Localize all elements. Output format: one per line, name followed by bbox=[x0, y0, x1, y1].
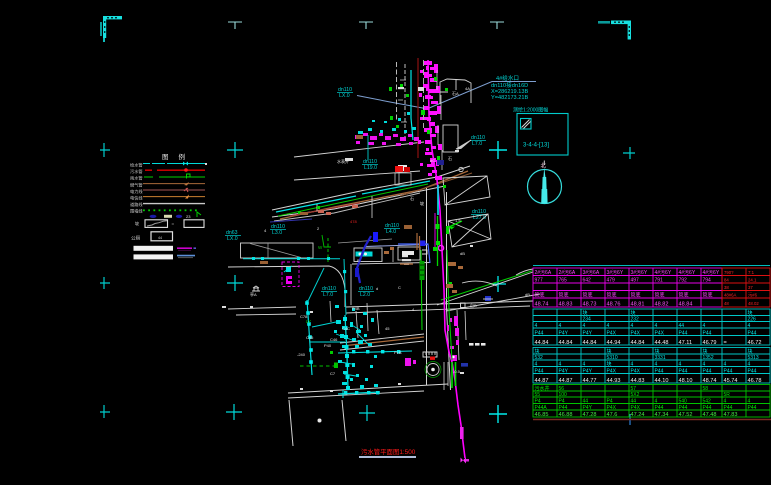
svg-text:4: 4 bbox=[679, 362, 682, 368]
svg-text:P44: P44 bbox=[703, 369, 712, 375]
svg-text:44: 44 bbox=[158, 236, 162, 240]
svg-text:232: 232 bbox=[631, 317, 640, 323]
svg-text:5R: 5R bbox=[724, 392, 731, 398]
svg-text:P4X: P4X bbox=[607, 405, 617, 411]
svg-text:44.77: 44.77 bbox=[583, 378, 597, 384]
svg-text:P44: P44 bbox=[748, 331, 757, 337]
svg-text:478: 478 bbox=[350, 219, 357, 224]
svg-text:5310: 5310 bbox=[607, 355, 618, 361]
svg-text:44.94: 44.94 bbox=[607, 340, 621, 346]
svg-text:792: 792 bbox=[679, 278, 688, 284]
svg-text:C7: C7 bbox=[330, 371, 336, 376]
svg-text:4: 4 bbox=[535, 323, 538, 329]
svg-text:532: 532 bbox=[535, 355, 544, 361]
svg-text:38: 38 bbox=[724, 285, 729, 290]
svg-text:4: 4 bbox=[748, 323, 751, 329]
svg-text:977: 977 bbox=[535, 278, 544, 284]
svg-text:48.84: 48.84 bbox=[679, 302, 693, 308]
svg-text:44.83: 44.83 bbox=[631, 378, 645, 384]
svg-text:P4X: P4X bbox=[607, 331, 617, 337]
svg-text:P44: P44 bbox=[679, 369, 688, 375]
svg-text:L7.0: L7.0 bbox=[323, 292, 333, 298]
svg-text:37: 37 bbox=[748, 285, 753, 290]
svg-text:P4X: P4X bbox=[607, 369, 617, 375]
svg-text:=: = bbox=[724, 340, 727, 346]
svg-text:4#污6Y: 4#污6Y bbox=[655, 269, 672, 276]
svg-text:4: 4 bbox=[607, 323, 610, 329]
svg-text:污#6: 污#6 bbox=[748, 292, 758, 299]
svg-text:4: 4 bbox=[631, 323, 634, 329]
svg-text:d: d bbox=[376, 286, 378, 291]
svg-text:块: 块 bbox=[583, 310, 588, 317]
svg-text:P44A: P44A bbox=[535, 405, 548, 411]
svg-text:LX.0: LX.0 bbox=[339, 93, 350, 99]
svg-text:管底: 管底 bbox=[583, 292, 593, 299]
svg-text:24.1: 24.1 bbox=[748, 278, 757, 283]
svg-text:791: 791 bbox=[655, 278, 664, 284]
svg-text:47.24: 47.24 bbox=[631, 412, 645, 418]
svg-text:48.10: 48.10 bbox=[679, 378, 693, 384]
svg-text:4: 4 bbox=[583, 362, 586, 368]
svg-text:块: 块 bbox=[748, 310, 753, 317]
svg-text:=: = bbox=[172, 222, 175, 227]
svg-text:dC: dC bbox=[430, 158, 435, 163]
svg-text:3#污6Y: 3#污6Y bbox=[631, 269, 648, 276]
svg-text:47.6: 47.6 bbox=[607, 412, 618, 418]
svg-text:44.87: 44.87 bbox=[535, 378, 549, 384]
svg-text:P4X: P4X bbox=[655, 331, 665, 337]
svg-text:L19.0: L19.0 bbox=[364, 165, 377, 171]
svg-text:-0.5: -0.5 bbox=[453, 369, 461, 374]
svg-text:C46: C46 bbox=[330, 337, 338, 342]
svg-text:亭A: 亭A bbox=[250, 291, 257, 297]
svg-text:4: 4 bbox=[748, 362, 751, 368]
svg-text:47.83: 47.83 bbox=[724, 412, 738, 418]
svg-text:P4Y: P4Y bbox=[583, 331, 593, 337]
svg-text:48.76: 48.76 bbox=[607, 302, 621, 308]
svg-text:P44: P44 bbox=[679, 405, 688, 411]
svg-text:dB: dB bbox=[460, 251, 465, 256]
svg-text:Y=482173.21B: Y=482173.21B bbox=[491, 95, 528, 101]
svg-text:L2.0: L2.0 bbox=[360, 292, 370, 298]
svg-text:47.52: 47.52 bbox=[679, 412, 693, 418]
svg-text:100: 100 bbox=[559, 392, 568, 398]
svg-text:44.93: 44.93 bbox=[607, 378, 621, 384]
svg-text:497: 497 bbox=[631, 278, 640, 284]
svg-text:P44: P44 bbox=[655, 369, 664, 375]
svg-text:48.73: 48.73 bbox=[583, 302, 597, 308]
svg-text:48.02: 48.02 bbox=[748, 301, 759, 306]
svg-text:542: 542 bbox=[703, 399, 712, 405]
svg-text:B: B bbox=[357, 258, 360, 263]
svg-text:块: 块 bbox=[703, 348, 708, 355]
svg-text:4: 4 bbox=[559, 362, 562, 368]
svg-text:4: 4 bbox=[724, 399, 727, 405]
svg-text:坡: 坡 bbox=[135, 220, 139, 226]
svg-text:围墙线: 围墙线 bbox=[130, 208, 143, 215]
svg-text:P44: P44 bbox=[748, 405, 757, 411]
svg-text:44.84: 44.84 bbox=[631, 340, 645, 346]
svg-text:管底: 管底 bbox=[655, 292, 665, 299]
svg-text:48: 48 bbox=[724, 301, 729, 306]
svg-text:58: 58 bbox=[703, 386, 709, 392]
svg-text:图例: 图例 bbox=[162, 152, 195, 161]
svg-text:540: 540 bbox=[679, 399, 688, 405]
svg-text:48.82: 48.82 bbox=[655, 302, 669, 308]
svg-text:479: 479 bbox=[607, 278, 616, 284]
svg-text:LX.0: LX.0 bbox=[227, 236, 238, 242]
svg-text:管底: 管底 bbox=[535, 292, 545, 299]
svg-text:管底: 管底 bbox=[607, 292, 617, 299]
svg-text:3-4-4-[13]: 3-4-4-[13] bbox=[523, 143, 549, 149]
svg-text:3331: 3331 bbox=[655, 355, 666, 361]
svg-text:46.78: 46.78 bbox=[748, 378, 762, 384]
svg-text:P44: P44 bbox=[679, 331, 688, 337]
svg-text:5313: 5313 bbox=[748, 355, 759, 361]
svg-text:L7.0: L7.0 bbox=[472, 141, 482, 147]
svg-text:测绘1:2000图幅: 测绘1:2000图幅 bbox=[513, 107, 548, 114]
svg-text:47.28: 47.28 bbox=[583, 412, 597, 418]
svg-text:1.5: 1.5 bbox=[455, 218, 461, 223]
svg-text:48.81: 48.81 bbox=[631, 302, 645, 308]
svg-text:45.74: 45.74 bbox=[724, 378, 738, 384]
svg-text:坡: 坡 bbox=[420, 200, 424, 206]
svg-text:P4Y: P4Y bbox=[559, 369, 569, 375]
svg-text:污水管平面图1:500: 污水管平面图1:500 bbox=[361, 447, 416, 456]
svg-text:雨水管: 雨水管 bbox=[130, 175, 143, 182]
svg-text:P4X: P4X bbox=[631, 369, 641, 375]
svg-text:2#污6A: 2#污6A bbox=[559, 269, 576, 276]
svg-text:3#污6A: 3#污6A bbox=[583, 269, 600, 276]
svg-text:P44: P44 bbox=[724, 369, 733, 375]
svg-text:dn110接dn16D: dn110接dn16D bbox=[491, 81, 528, 89]
svg-text:46.72: 46.72 bbox=[748, 340, 762, 346]
svg-text:44.84: 44.84 bbox=[583, 340, 597, 346]
svg-text:7:1: 7:1 bbox=[748, 270, 755, 275]
svg-text:44: 44 bbox=[583, 399, 589, 405]
svg-text:块: 块 bbox=[607, 361, 612, 368]
svg-text:790?: 790? bbox=[724, 270, 734, 275]
svg-text:石: 石 bbox=[410, 196, 414, 201]
svg-text:55: 55 bbox=[535, 392, 541, 398]
svg-text:管底: 管底 bbox=[703, 292, 713, 299]
svg-text:2#污6A: 2#污6A bbox=[535, 269, 552, 276]
svg-text:管底: 管底 bbox=[559, 292, 569, 299]
svg-text:P44: P44 bbox=[703, 405, 712, 411]
svg-text:P44: P44 bbox=[748, 369, 757, 375]
svg-text:P4Y: P4Y bbox=[559, 331, 569, 337]
svg-text:P4B: P4B bbox=[352, 306, 360, 311]
svg-text:44.84: 44.84 bbox=[535, 340, 549, 346]
svg-text:234: 234 bbox=[583, 317, 592, 323]
svg-text:794: 794 bbox=[703, 278, 712, 284]
svg-text:白B: 白B bbox=[470, 302, 477, 308]
svg-text:48.74: 48.74 bbox=[535, 302, 549, 308]
svg-text:P44: P44 bbox=[535, 369, 544, 375]
svg-text:块: 块 bbox=[655, 348, 660, 355]
svg-text:管底: 管底 bbox=[679, 292, 689, 299]
svg-text:45: 45 bbox=[385, 326, 390, 331]
svg-text:L3.0: L3.0 bbox=[272, 230, 282, 236]
svg-text:765: 765 bbox=[559, 278, 568, 284]
svg-text:C45: C45 bbox=[306, 335, 314, 340]
svg-text:44.87: 44.87 bbox=[559, 378, 573, 384]
svg-text:48.74: 48.74 bbox=[703, 378, 717, 384]
svg-text:P1B: P1B bbox=[394, 350, 402, 355]
svg-text:P44: P44 bbox=[703, 331, 712, 337]
svg-text:4: 4 bbox=[559, 323, 562, 329]
svg-text:47.48: 47.48 bbox=[703, 412, 717, 418]
svg-text:642: 642 bbox=[583, 278, 592, 284]
svg-text:4: 4 bbox=[583, 323, 586, 329]
svg-text:47.11: 47.11 bbox=[679, 340, 693, 346]
svg-text:4: 4 bbox=[703, 323, 706, 329]
svg-text:P44: P44 bbox=[724, 405, 733, 411]
svg-text:dB: dB bbox=[525, 292, 530, 297]
svg-text:石A: 石A bbox=[452, 91, 459, 96]
svg-text:4: 4 bbox=[655, 399, 658, 405]
svg-text:P44: P44 bbox=[559, 405, 568, 411]
svg-text:5X2: 5X2 bbox=[631, 392, 640, 398]
svg-text:4: 4 bbox=[631, 362, 634, 368]
svg-text:块: 块 bbox=[748, 348, 753, 355]
svg-text:P4: P4 bbox=[535, 399, 541, 405]
svg-text:4: 4 bbox=[724, 362, 727, 368]
svg-text:P4: P4 bbox=[607, 399, 613, 405]
svg-text:1352: 1352 bbox=[703, 355, 714, 361]
svg-text:44.10: 44.10 bbox=[655, 378, 669, 384]
svg-text:P4X: P4X bbox=[631, 331, 641, 337]
svg-text:226: 226 bbox=[748, 317, 757, 323]
svg-text:C4C: C4C bbox=[342, 326, 350, 331]
svg-text:P4: P4 bbox=[559, 399, 565, 405]
svg-text:P44: P44 bbox=[535, 331, 544, 337]
svg-text:P40: P40 bbox=[324, 343, 332, 348]
svg-text:C: C bbox=[398, 285, 401, 290]
svg-text:P44: P44 bbox=[655, 405, 664, 411]
svg-text:P4X: P4X bbox=[631, 405, 641, 411]
svg-text:46.85: 46.85 bbox=[535, 412, 549, 418]
svg-text:管底: 管底 bbox=[631, 292, 641, 299]
svg-text:4A: 4A bbox=[465, 86, 470, 91]
svg-text:电信线: 电信线 bbox=[130, 195, 143, 202]
svg-text:石: 石 bbox=[448, 156, 452, 161]
svg-text:48#6A: 48#6A bbox=[724, 293, 737, 298]
svg-text:23: 23 bbox=[186, 214, 191, 219]
svg-text:3#污6Y: 3#污6Y bbox=[607, 269, 624, 276]
svg-text:-240: -240 bbox=[297, 352, 306, 357]
svg-text:L4.0: L4.0 bbox=[386, 229, 396, 235]
svg-text:块: 块 bbox=[535, 348, 540, 355]
svg-text:4: 4 bbox=[703, 362, 706, 368]
svg-text:电力线: 电力线 bbox=[130, 188, 143, 195]
svg-text:48.83: 48.83 bbox=[559, 302, 573, 308]
svg-text:46.88: 46.88 bbox=[559, 412, 573, 418]
svg-text:给水管: 给水管 bbox=[130, 162, 143, 169]
svg-text:44.48: 44.48 bbox=[655, 340, 669, 346]
svg-text:P4Y: P4Y bbox=[583, 405, 593, 411]
svg-text:4#污6Y: 4#污6Y bbox=[679, 269, 696, 276]
svg-text:4: 4 bbox=[535, 362, 538, 368]
svg-text:LY: LY bbox=[306, 319, 311, 324]
svg-text:C78: C78 bbox=[300, 314, 308, 319]
svg-text:污水井: 污水井 bbox=[535, 385, 550, 392]
svg-text:84: 84 bbox=[724, 278, 729, 283]
svg-text:44: 44 bbox=[679, 323, 685, 329]
svg-text:燃气管: 燃气管 bbox=[130, 181, 143, 188]
svg-text:块: 块 bbox=[607, 348, 612, 355]
svg-text:4#污6Y: 4#污6Y bbox=[703, 269, 720, 276]
svg-text:块: 块 bbox=[631, 310, 636, 317]
svg-text:4#给水口: 4#给水口 bbox=[496, 74, 519, 82]
svg-text:污水管: 污水管 bbox=[130, 168, 143, 175]
svg-text:44.84: 44.84 bbox=[559, 340, 573, 346]
svg-text:44: 44 bbox=[631, 399, 637, 405]
svg-text:46.79: 46.79 bbox=[703, 340, 717, 346]
svg-text:4: 4 bbox=[748, 399, 751, 405]
svg-text:北: 北 bbox=[541, 162, 547, 170]
svg-text:4: 4 bbox=[655, 323, 658, 329]
svg-text:道路线: 道路线 bbox=[130, 201, 143, 208]
svg-text:4: 4 bbox=[655, 362, 658, 368]
svg-text:47.34: 47.34 bbox=[655, 412, 669, 418]
svg-text:P4Y: P4Y bbox=[583, 369, 593, 375]
